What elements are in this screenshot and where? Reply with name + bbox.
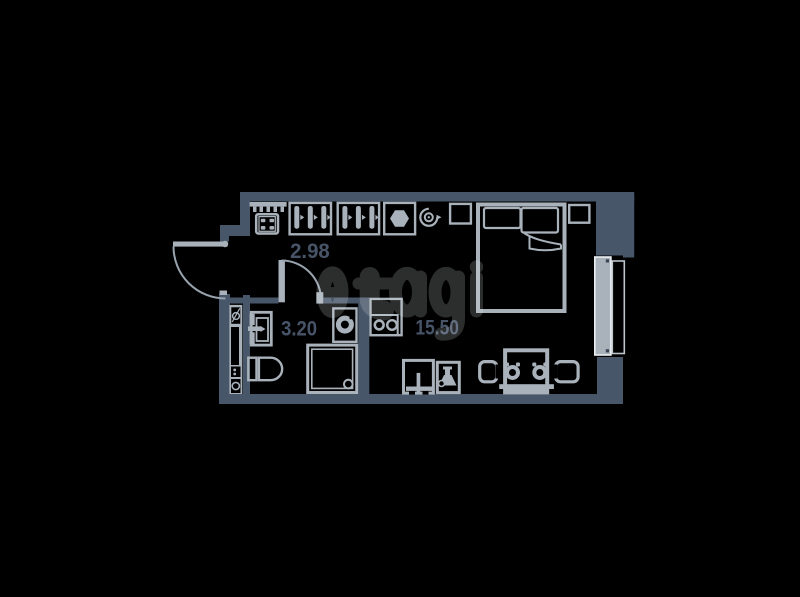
svg-text:3.20: 3.20 [281, 318, 317, 341]
svg-text:2.98: 2.98 [290, 240, 330, 263]
